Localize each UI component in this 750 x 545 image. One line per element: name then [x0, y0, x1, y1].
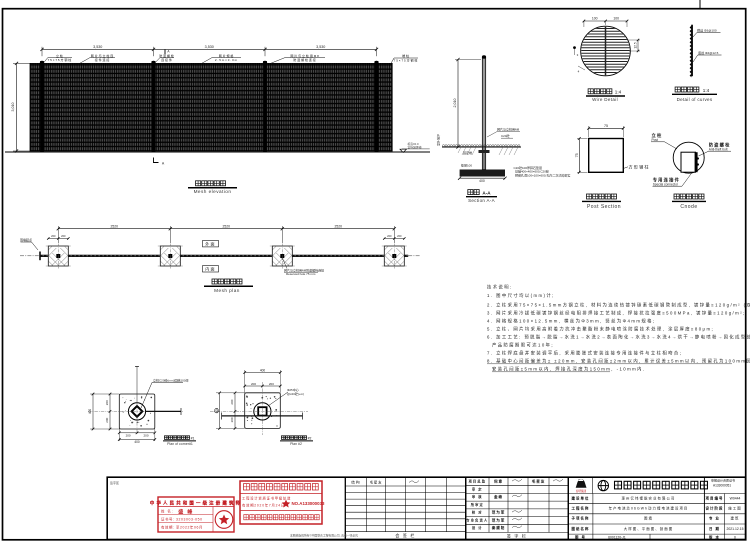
- svg-text:NO.A133000033: NO.A133000033: [292, 501, 326, 506]
- svg-text:Cnode: Cnode: [680, 204, 697, 210]
- svg-text:有效期2020年7月24日: 有效期2020年7月24日: [242, 502, 285, 507]
- svg-text:产品防腐期限可达10年;: 产品防腐期限可达10年;: [492, 342, 554, 349]
- svg-text:毛星友: 毛星友: [370, 480, 383, 485]
- svg-text:8. 基础中心间距偏差为± ±20mm, 安装孔间距±2mm: 8. 基础中心间距偏差为± ±20mm, 安装孔间距±2mm以内, 累计误差±5…: [487, 358, 750, 365]
- svg-text:预留孔洞100×100×600,孔内二次浇捣密实: 预留孔洞100×100×600,孔内二次浇捣密实: [515, 172, 570, 177]
- svg-text:金峰: 金峰: [493, 494, 503, 499]
- svg-text:Reserved hole 75 mm: Reserved hole 75 mm: [286, 272, 316, 276]
- svg-text:申报设计资质证书: 申报设计资质证书: [711, 478, 735, 483]
- svg-text:#2: #2: [308, 436, 312, 440]
- svg-text:工程名称: 工程名称: [572, 506, 590, 511]
- svg-text:图纸名称: 图纸名称: [572, 526, 590, 531]
- svg-text:Anti-theft bolt: Anti-theft bolt: [709, 147, 728, 151]
- svg-text:方形钢柱: 方形钢柱: [629, 163, 650, 170]
- svg-text:3,010: 3,010: [11, 103, 15, 112]
- svg-text:倪意: 倪意: [494, 479, 503, 484]
- svg-text:网片与立柱用M8: 网片与立柱用M8: [497, 127, 519, 132]
- svg-text:秦顺阳: 秦顺阳: [492, 525, 505, 530]
- svg-text:75: 75: [575, 153, 579, 157]
- svg-text:Mesh plan: Mesh plan: [214, 288, 240, 293]
- svg-text:200: 200: [387, 234, 392, 238]
- svg-text:4. 网格规格100×12.5mm, 横丝为Φ3mm, 竖丝: 4. 网格规格100×12.5mm, 横丝为Φ3mm, 竖丝为Φ4mm规格;: [487, 318, 656, 325]
- svg-text:6. 加工工艺: 预脱脂→脱脂→水洗1→水洗2→表面陶化→水: 6. 加工工艺: 预脱脂→脱脂→水洗1→水洗2→表面陶化→水洗3→水洗4→烘干→…: [487, 334, 750, 341]
- svg-text:2. 立柱采用75×75×1.5mm方钢立柱, 材料为连续热: 2. 立柱采用75×75×1.5mm方钢立柱, 材料为连续热镀锌碳素低碳钢管制成…: [487, 301, 750, 308]
- svg-text:签字区: 签字区: [110, 480, 119, 485]
- svg-text:建设单位: 建设单位: [572, 495, 590, 500]
- svg-text:外面: 外面: [205, 240, 215, 246]
- svg-text:75: 75: [604, 124, 608, 128]
- svg-text:200: 200: [230, 417, 234, 422]
- svg-text:有效期: 至2022年06月: 有效期: 至2022年06月: [161, 524, 203, 529]
- svg-text:400: 400: [88, 409, 92, 415]
- svg-text:1:4: 1:4: [703, 88, 710, 93]
- svg-text:工程设计资质证书甲级轨道: 工程设计资质证书甲级轨道: [242, 496, 291, 501]
- svg-text:项目总监: 项目总监: [469, 479, 487, 484]
- svg-text:12.5: 12.5: [633, 42, 637, 48]
- svg-text:设计阶段: 设计阶段: [706, 506, 724, 511]
- svg-text:项目编号: 项目编号: [706, 495, 724, 500]
- svg-text:横丝 Φ3@100: 横丝 Φ3@100: [697, 28, 717, 33]
- svg-text:200: 200: [51, 234, 56, 238]
- svg-text:会 签 栏: 会 签 栏: [395, 532, 415, 538]
- svg-text:200: 200: [105, 417, 109, 422]
- svg-text:75×75方钢柱: 75×75方钢柱: [48, 57, 73, 62]
- svg-text:75×75方钢柱: 75×75方钢柱: [394, 57, 419, 62]
- svg-text:立柱C20砼(mm)固结100深: 立柱C20砼(mm)固结100深: [153, 378, 189, 383]
- svg-text:垫层100: 垫层100: [461, 162, 472, 167]
- svg-text:W0444: W0444: [730, 496, 741, 500]
- svg-text:1:4: 1:4: [615, 90, 622, 95]
- svg-text:3,530: 3,530: [316, 45, 325, 49]
- svg-text:3. 网片采用冷拔低碳镀锌钢丝经电阻排焊接工艺制成, 焊接抗: 3. 网片采用冷拔低碳镀锌钢丝经电阻排焊接工艺制成, 焊接抗拉强度≥500MPa…: [487, 310, 746, 317]
- svg-text:200: 200: [397, 234, 402, 238]
- svg-text:C20砼: C20砼: [501, 133, 510, 138]
- svg-text:2520: 2520: [111, 224, 119, 228]
- svg-text:年产电池芯06GWh动力锂电池建设项目: 年产电池芯06GWh动力锂电池建设项目: [609, 506, 689, 511]
- svg-text:Detail of curves: Detail of curves: [677, 97, 713, 102]
- svg-text:范为军: 范为军: [492, 510, 505, 515]
- svg-text:2520: 2520: [223, 224, 231, 228]
- svg-text:Plan #2: Plan #2: [290, 442, 302, 446]
- svg-text:Special connector: Special connector: [653, 182, 679, 186]
- svg-text:签 字 栏: 签 字 栏: [507, 532, 527, 538]
- svg-text:设 计: 设 计: [472, 525, 483, 530]
- svg-text:防盗螺栓连接: 防盗螺栓连接: [293, 57, 316, 62]
- svg-text:200: 200: [230, 399, 234, 404]
- svg-text:结构: 结构: [351, 480, 360, 485]
- svg-text:Post: Post: [652, 138, 658, 142]
- svg-text:7. 立柱焊底盘并安装调平后, 采用膨胀式安装连接专用连接件: 7. 立柱焊底盘并安装调平后, 采用膨胀式安装连接专用连接件与立柱相吻合;: [487, 350, 682, 357]
- svg-text:200: 200: [61, 234, 66, 238]
- svg-text:大样图、平面图、剖面图: 大样图、平面图、剖面图: [624, 526, 673, 531]
- svg-text:Plan of corner#1: Plan of corner#1: [167, 442, 193, 446]
- svg-text:惠州亿纬锂能实业有限公司: 惠州亿纬锂能实业有限公司: [622, 495, 676, 500]
- svg-text:围墙起点: 围墙起点: [20, 237, 32, 242]
- svg-text:#1: #1: [191, 436, 195, 440]
- svg-text:固定端: 固定端: [463, 150, 472, 155]
- svg-text:6001120-J1: 6001120-J1: [608, 535, 626, 539]
- svg-text:A133000051: A133000051: [713, 483, 731, 487]
- svg-text:2021.12.15: 2021.12.15: [727, 527, 744, 531]
- svg-text:200: 200: [251, 382, 256, 386]
- svg-text:3,530: 3,530: [93, 45, 102, 49]
- svg-text:400: 400: [260, 368, 266, 372]
- svg-text:证书号: 3203003-050: 证书号: 3203003-050: [161, 516, 203, 521]
- svg-text:连接件: 连接件: [161, 57, 173, 62]
- svg-text:4: 4: [578, 70, 580, 74]
- svg-text:谷轩集团: 谷轩集团: [576, 489, 587, 493]
- svg-text:400: 400: [479, 179, 485, 183]
- svg-text:100: 100: [592, 17, 598, 21]
- svg-text:200: 200: [126, 433, 131, 437]
- svg-text:Section A-A: Section A-A: [468, 198, 495, 203]
- svg-text:1. 图中尺寸均以(mm)计;: 1. 图中尺寸均以(mm)计;: [487, 292, 555, 299]
- svg-text:日 期: 日 期: [709, 526, 720, 531]
- svg-text:校 对: 校 对: [472, 510, 483, 515]
- svg-text:@c20砼(+m): @c20砼(+m): [287, 391, 304, 396]
- svg-text:接件连接: 接件连接: [95, 57, 111, 62]
- svg-text:100: 100: [613, 17, 619, 21]
- svg-text:范为军: 范为军: [492, 517, 505, 522]
- svg-text:专业负责人: 专业负责人: [466, 517, 488, 522]
- svg-text:毛星友: 毛星友: [532, 479, 545, 484]
- svg-text:400: 400: [134, 440, 140, 444]
- svg-text:室外地坪: 室外地坪: [436, 134, 441, 146]
- svg-text:技术说明:: 技术说明:: [487, 284, 513, 291]
- svg-text:Mesh elevation: Mesh elevation: [194, 189, 232, 194]
- svg-text:本图纸版权所有©中国联合工程有限公司, 违者一律必究: 本图纸版权所有©中国联合工程有限公司, 违者一律必究: [290, 534, 358, 538]
- svg-text:3,530: 3,530: [205, 45, 214, 49]
- svg-text:3: 3: [577, 53, 579, 57]
- svg-text:Wire Detail: Wire Detail: [592, 97, 618, 102]
- svg-text:2.5m×3.0m: 2.5m×3.0m: [215, 58, 238, 62]
- svg-text:0: 0: [734, 535, 736, 539]
- svg-text:200: 200: [269, 382, 274, 386]
- svg-text:200: 200: [105, 400, 109, 405]
- svg-text:审 定: 审 定: [472, 486, 483, 491]
- svg-text:Post Section: Post Section: [587, 204, 621, 210]
- svg-text:图 号: 图 号: [575, 534, 586, 539]
- svg-text:竖丝 Φ4@12.5: 竖丝 Φ4@12.5: [698, 50, 719, 55]
- svg-text:施工图: 施工图: [728, 506, 741, 511]
- svg-text:2520: 2520: [335, 224, 343, 228]
- svg-text:内面: 内面: [205, 266, 215, 272]
- svg-text:姓 名:: 姓 名:: [161, 509, 174, 514]
- svg-text:专 业: 专 业: [709, 516, 720, 521]
- svg-text:所审定: 所审定: [471, 502, 484, 507]
- svg-text:中华人民共和国一级注册建筑师: 中华人民共和国一级注册建筑师: [150, 500, 242, 507]
- svg-text:5. 立柱、网片均采用高附着力抗冲击聚酯粉末静电喷涂防腐技术: 5. 立柱、网片均采用高附着力抗冲击聚酯粉末静电喷涂防腐技术处理, 涂层厚度≥8…: [487, 326, 714, 333]
- svg-text:版 本: 版 本: [709, 534, 720, 539]
- svg-text:建筑: 建筑: [731, 516, 740, 521]
- svg-text:围墙: 围墙: [644, 516, 653, 521]
- svg-text:A-A: A-A: [482, 190, 491, 195]
- svg-text:2,010: 2,010: [453, 99, 457, 108]
- svg-text:安装孔间距±5mm以内, 焊接孔深度为150mm, -10m: 安装孔间距±5mm以内, 焊接孔深度为150mm, -10mm内.: [492, 366, 646, 373]
- svg-text:审 核: 审 核: [472, 494, 483, 499]
- svg-text:A: A: [162, 162, 165, 166]
- svg-text:子项名称: 子项名称: [572, 516, 590, 521]
- svg-text:200: 200: [143, 433, 148, 437]
